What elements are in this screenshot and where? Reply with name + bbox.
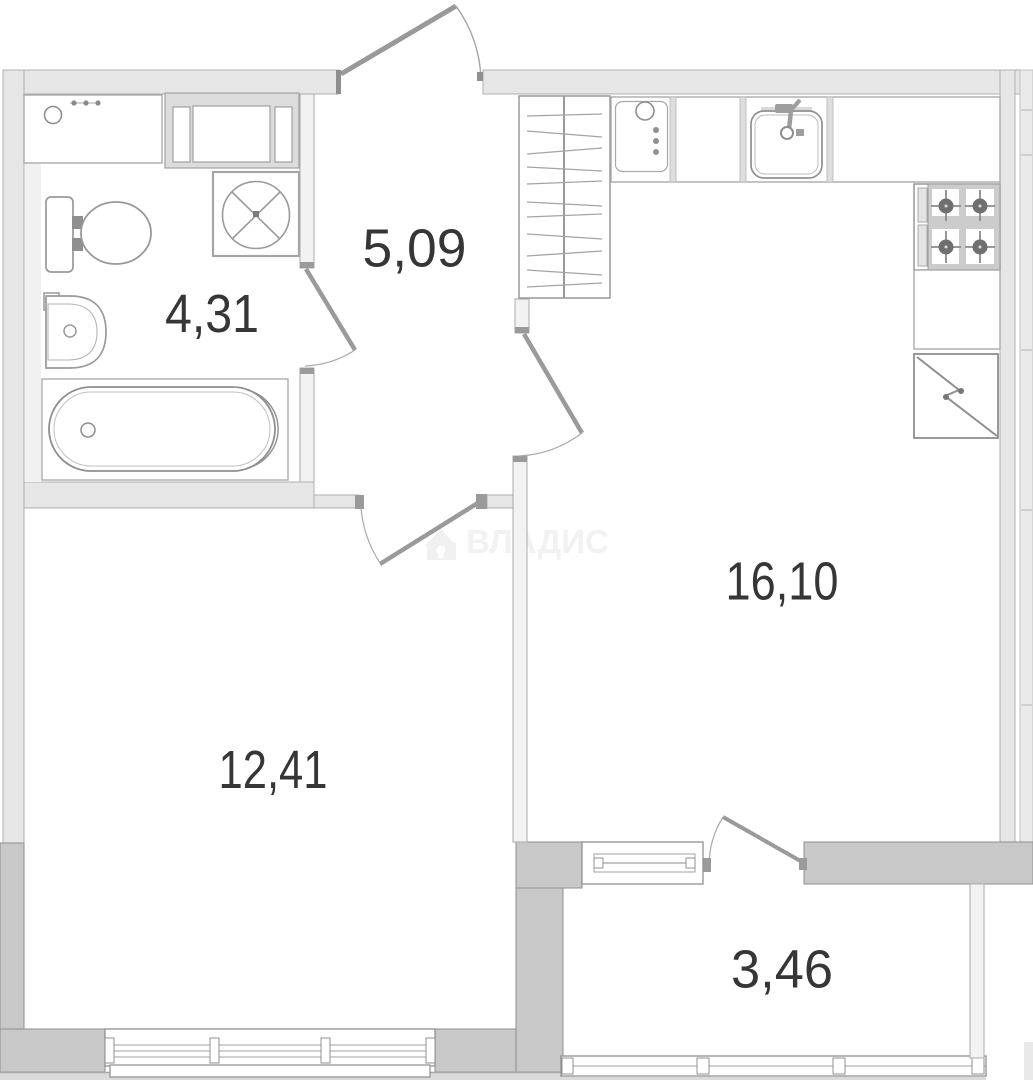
svg-text:ВЛАДИС: ВЛАДИС [466, 523, 609, 560]
svg-text:12,41: 12,41 [219, 740, 328, 800]
svg-text:3,46: 3,46 [731, 940, 833, 1000]
svg-text:4,31: 4,31 [165, 284, 259, 344]
svg-text:16,10: 16,10 [726, 552, 839, 612]
svg-text:5,09: 5,09 [363, 219, 467, 279]
